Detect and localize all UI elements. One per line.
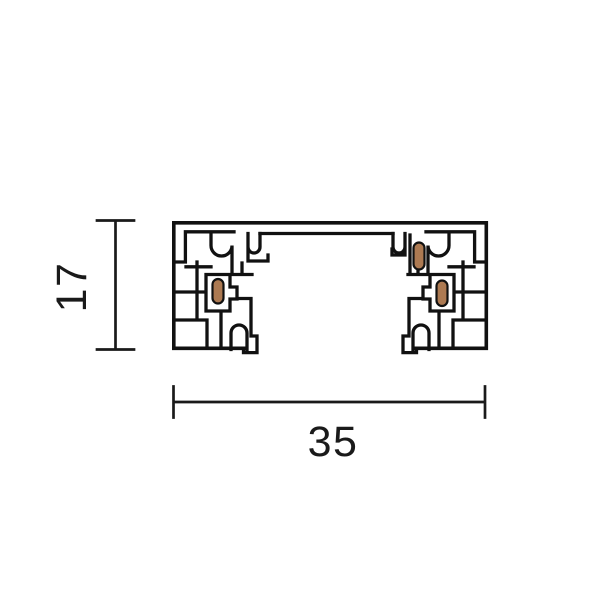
height-dimension-label: 17	[48, 262, 96, 313]
width-dimension-line	[174, 387, 486, 418]
conductor-left-middle-icon	[213, 279, 224, 304]
width-dimension: 35	[174, 387, 486, 467]
conductor-right-middle-icon	[437, 281, 448, 307]
height-dimension-line	[97, 221, 134, 350]
width-dimension-label: 35	[308, 418, 359, 466]
track-cross-section-drawing: 17 35	[0, 0, 600, 600]
conductor-right-top-icon	[414, 243, 425, 270]
height-dimension: 17	[48, 221, 134, 350]
drawing-canvas: 17 35	[0, 0, 600, 600]
